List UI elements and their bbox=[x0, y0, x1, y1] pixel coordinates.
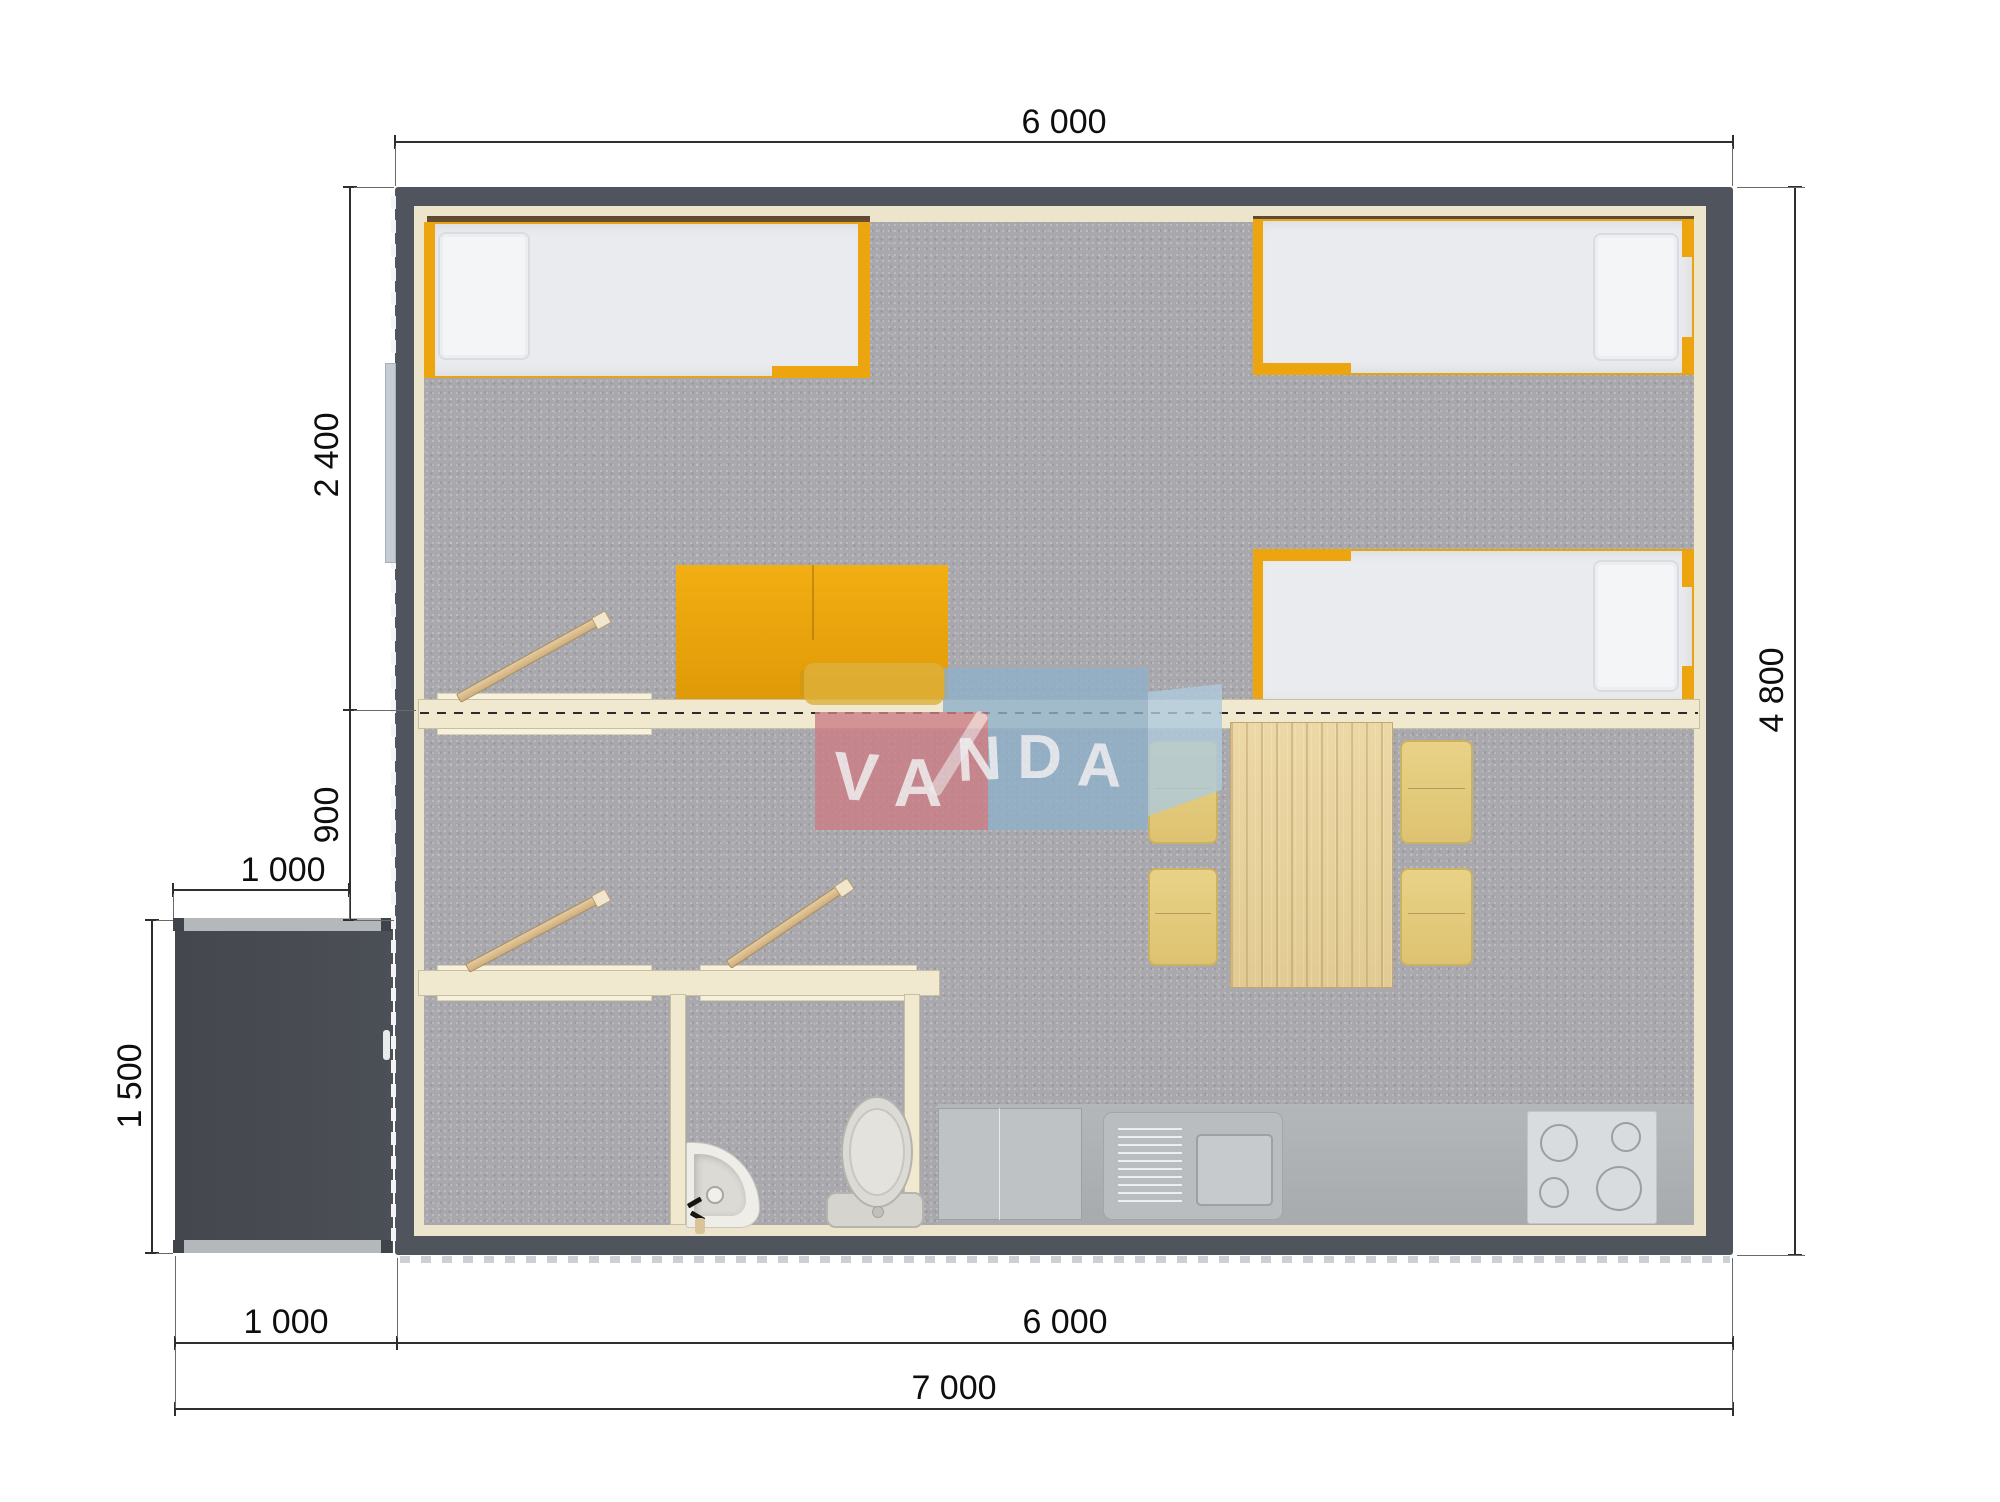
bed-middle-right-post-a bbox=[1682, 551, 1694, 587]
watermark-letter: A bbox=[893, 749, 942, 817]
bed-top-right-pillow bbox=[1593, 233, 1679, 361]
bed-middle-right-pillow bbox=[1593, 560, 1679, 692]
dim-tick bbox=[396, 1336, 398, 1350]
dim-ext bbox=[1732, 146, 1733, 186]
toilet-seat bbox=[849, 1108, 905, 1196]
bed-top-left-side-rail bbox=[772, 366, 870, 378]
bed-top-right-post-b bbox=[1682, 337, 1694, 373]
dim-ext bbox=[1732, 1347, 1733, 1408]
bed-top-right-side-rail bbox=[1253, 363, 1351, 375]
dim-ext bbox=[156, 920, 173, 921]
bed-middle-right-post-b bbox=[1682, 666, 1694, 702]
dim-label-bottom-house: 6 000 bbox=[965, 1305, 1165, 1339]
dining-table bbox=[1230, 722, 1393, 988]
kitchen-cabinet-top bbox=[938, 1108, 1082, 1220]
south-wall-panel-dashes bbox=[400, 1256, 1730, 1263]
dim-line-total-depth bbox=[1794, 187, 1796, 1255]
watermark-letter: V bbox=[831, 742, 881, 813]
stove-burner-top-left bbox=[1540, 1124, 1578, 1162]
porch-post-top-left bbox=[173, 918, 184, 931]
floor-plan-canvas: VANDA 6 000 2 400 900 1 000 1 500 4 800 … bbox=[0, 0, 2000, 1502]
bed-top-left-corner-post bbox=[424, 364, 435, 378]
entry-porch-deck bbox=[175, 920, 393, 1253]
dim-ext bbox=[1737, 1255, 1805, 1256]
dim-line-bottom-total bbox=[175, 1408, 1733, 1410]
dim-label-top-width: 6 000 bbox=[964, 105, 1164, 139]
dim-label-porch-width: 1 000 bbox=[183, 853, 383, 887]
watermark-letter: D bbox=[1017, 727, 1062, 795]
west-wall-panel-dashes bbox=[391, 196, 396, 1248]
dim-ext bbox=[349, 894, 350, 920]
dim-ext bbox=[395, 146, 396, 186]
bed-top-left-head-rail bbox=[424, 222, 435, 378]
toilet-flush-button bbox=[872, 1206, 884, 1218]
kitchen-sink-basin bbox=[1196, 1134, 1273, 1206]
watermark-letter: A bbox=[1076, 734, 1123, 804]
porch-post-bottom-left bbox=[173, 1240, 184, 1253]
bed-middle-right-head-rail bbox=[1253, 549, 1263, 706]
west-window bbox=[385, 363, 396, 563]
watermark-letter: N bbox=[956, 728, 1004, 798]
bathroom-middle-wall bbox=[670, 994, 686, 1225]
dim-ext bbox=[1732, 1258, 1733, 1338]
stove-burner-bottom-left bbox=[1539, 1177, 1569, 1208]
dim-label-porch-depth: 1 500 bbox=[113, 986, 147, 1186]
bathroom-soap-bottle bbox=[695, 1218, 705, 1234]
bed-middle-right-side-rail bbox=[1253, 549, 1351, 561]
chair-bottom-right bbox=[1400, 868, 1473, 966]
watermark-text: VANDA bbox=[833, 733, 1122, 801]
dim-ext bbox=[175, 1256, 176, 1338]
dim-ext bbox=[175, 1347, 176, 1408]
dim-label-bottom-porch: 1 000 bbox=[186, 1305, 386, 1339]
dim-ext bbox=[156, 1253, 173, 1254]
dim-ext bbox=[354, 920, 394, 921]
chair-top-right bbox=[1400, 740, 1473, 844]
kitchen-drainboard bbox=[1118, 1128, 1182, 1206]
dim-ext bbox=[354, 710, 416, 711]
bathroom-right-wall bbox=[904, 994, 920, 1225]
dim-label-bottom-total: 7 000 bbox=[854, 1371, 1054, 1405]
bathroom-sink-faucet bbox=[706, 1186, 724, 1204]
dim-line-top-width bbox=[395, 141, 1733, 143]
logo-yellow-block bbox=[804, 663, 944, 705]
dim-ext bbox=[173, 894, 174, 918]
dim-line-porch-width bbox=[173, 889, 350, 891]
dim-label-total-depth: 4 800 bbox=[1755, 590, 1789, 790]
stove-burner-bottom-right bbox=[1596, 1166, 1642, 1211]
stove-burner-top-right bbox=[1611, 1122, 1641, 1152]
bed-top-right-post-a bbox=[1682, 221, 1694, 257]
dim-label-bedroom-depth: 2 400 bbox=[310, 355, 344, 555]
bed-top-left-pillow bbox=[438, 232, 530, 360]
bathroom-front-wall bbox=[418, 970, 940, 996]
dim-ext bbox=[1737, 187, 1805, 188]
porch-railing-bottom bbox=[173, 1240, 392, 1253]
bed-top-left-foot-rail bbox=[858, 222, 870, 378]
chair-bottom-left bbox=[1148, 868, 1218, 966]
dim-ext bbox=[397, 1258, 398, 1338]
dim-line-porch-depth bbox=[151, 920, 153, 1253]
kitchen-cabinet-seam bbox=[999, 1108, 1000, 1220]
dim-line-bedroom-depth bbox=[349, 187, 351, 710]
entry-door-handle bbox=[383, 1030, 390, 1060]
dim-ext bbox=[354, 187, 394, 188]
bed-top-right-head-rail bbox=[1253, 219, 1263, 375]
dim-line-bottom-split bbox=[175, 1342, 1733, 1344]
